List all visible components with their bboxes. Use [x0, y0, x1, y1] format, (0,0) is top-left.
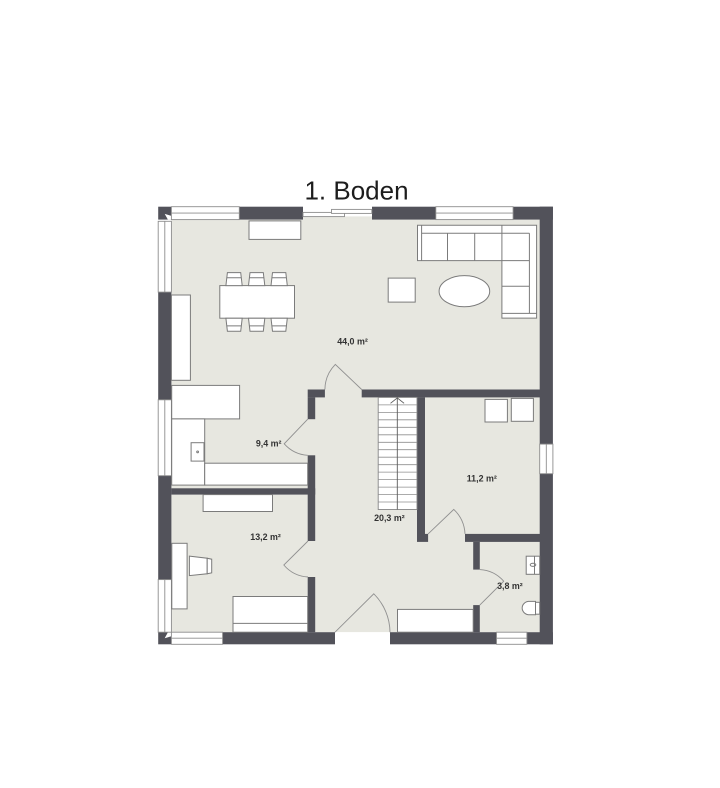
svg-text:9,4 m²: 9,4 m² [256, 439, 282, 449]
svg-text:3,8 m²: 3,8 m² [497, 581, 523, 591]
svg-text:11,2 m²: 11,2 m² [467, 474, 497, 484]
svg-text:13,2 m²: 13,2 m² [250, 532, 281, 542]
svg-text:44,0 m²: 44,0 m² [337, 336, 368, 346]
svg-text:20,3 m²: 20,3 m² [374, 513, 405, 523]
svg-text:1. Boden: 1. Boden [304, 176, 408, 206]
